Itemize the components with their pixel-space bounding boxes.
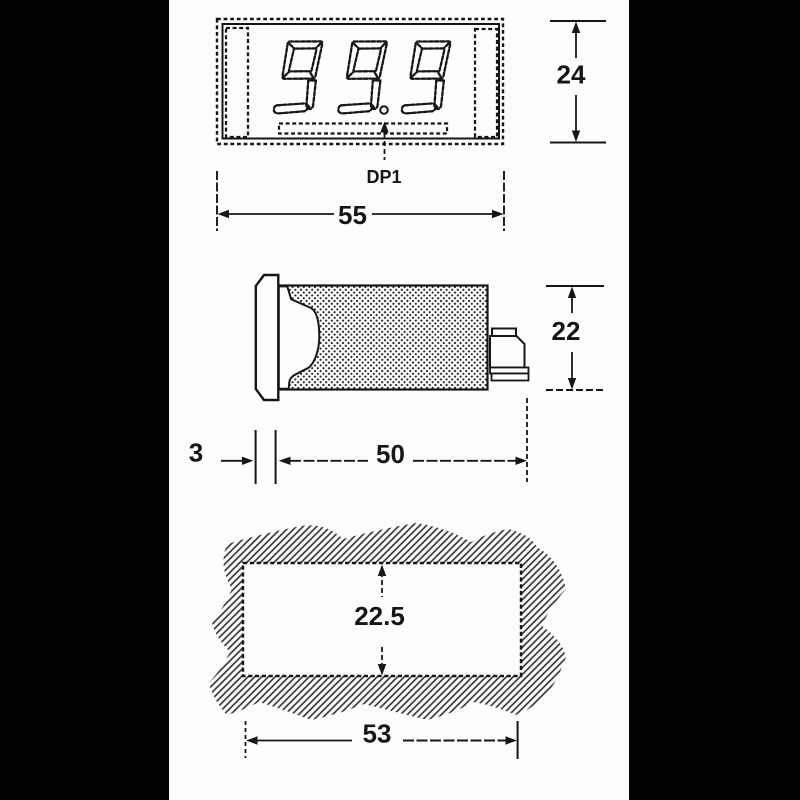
svg-text:50: 50	[376, 439, 405, 469]
svg-text:55: 55	[338, 200, 367, 230]
svg-text:3: 3	[189, 438, 203, 468]
svg-text:22.5: 22.5	[354, 601, 405, 631]
svg-text:53: 53	[363, 719, 392, 749]
svg-text:DP1: DP1	[366, 167, 401, 187]
svg-text:22: 22	[552, 316, 581, 346]
svg-text:24: 24	[557, 60, 586, 90]
